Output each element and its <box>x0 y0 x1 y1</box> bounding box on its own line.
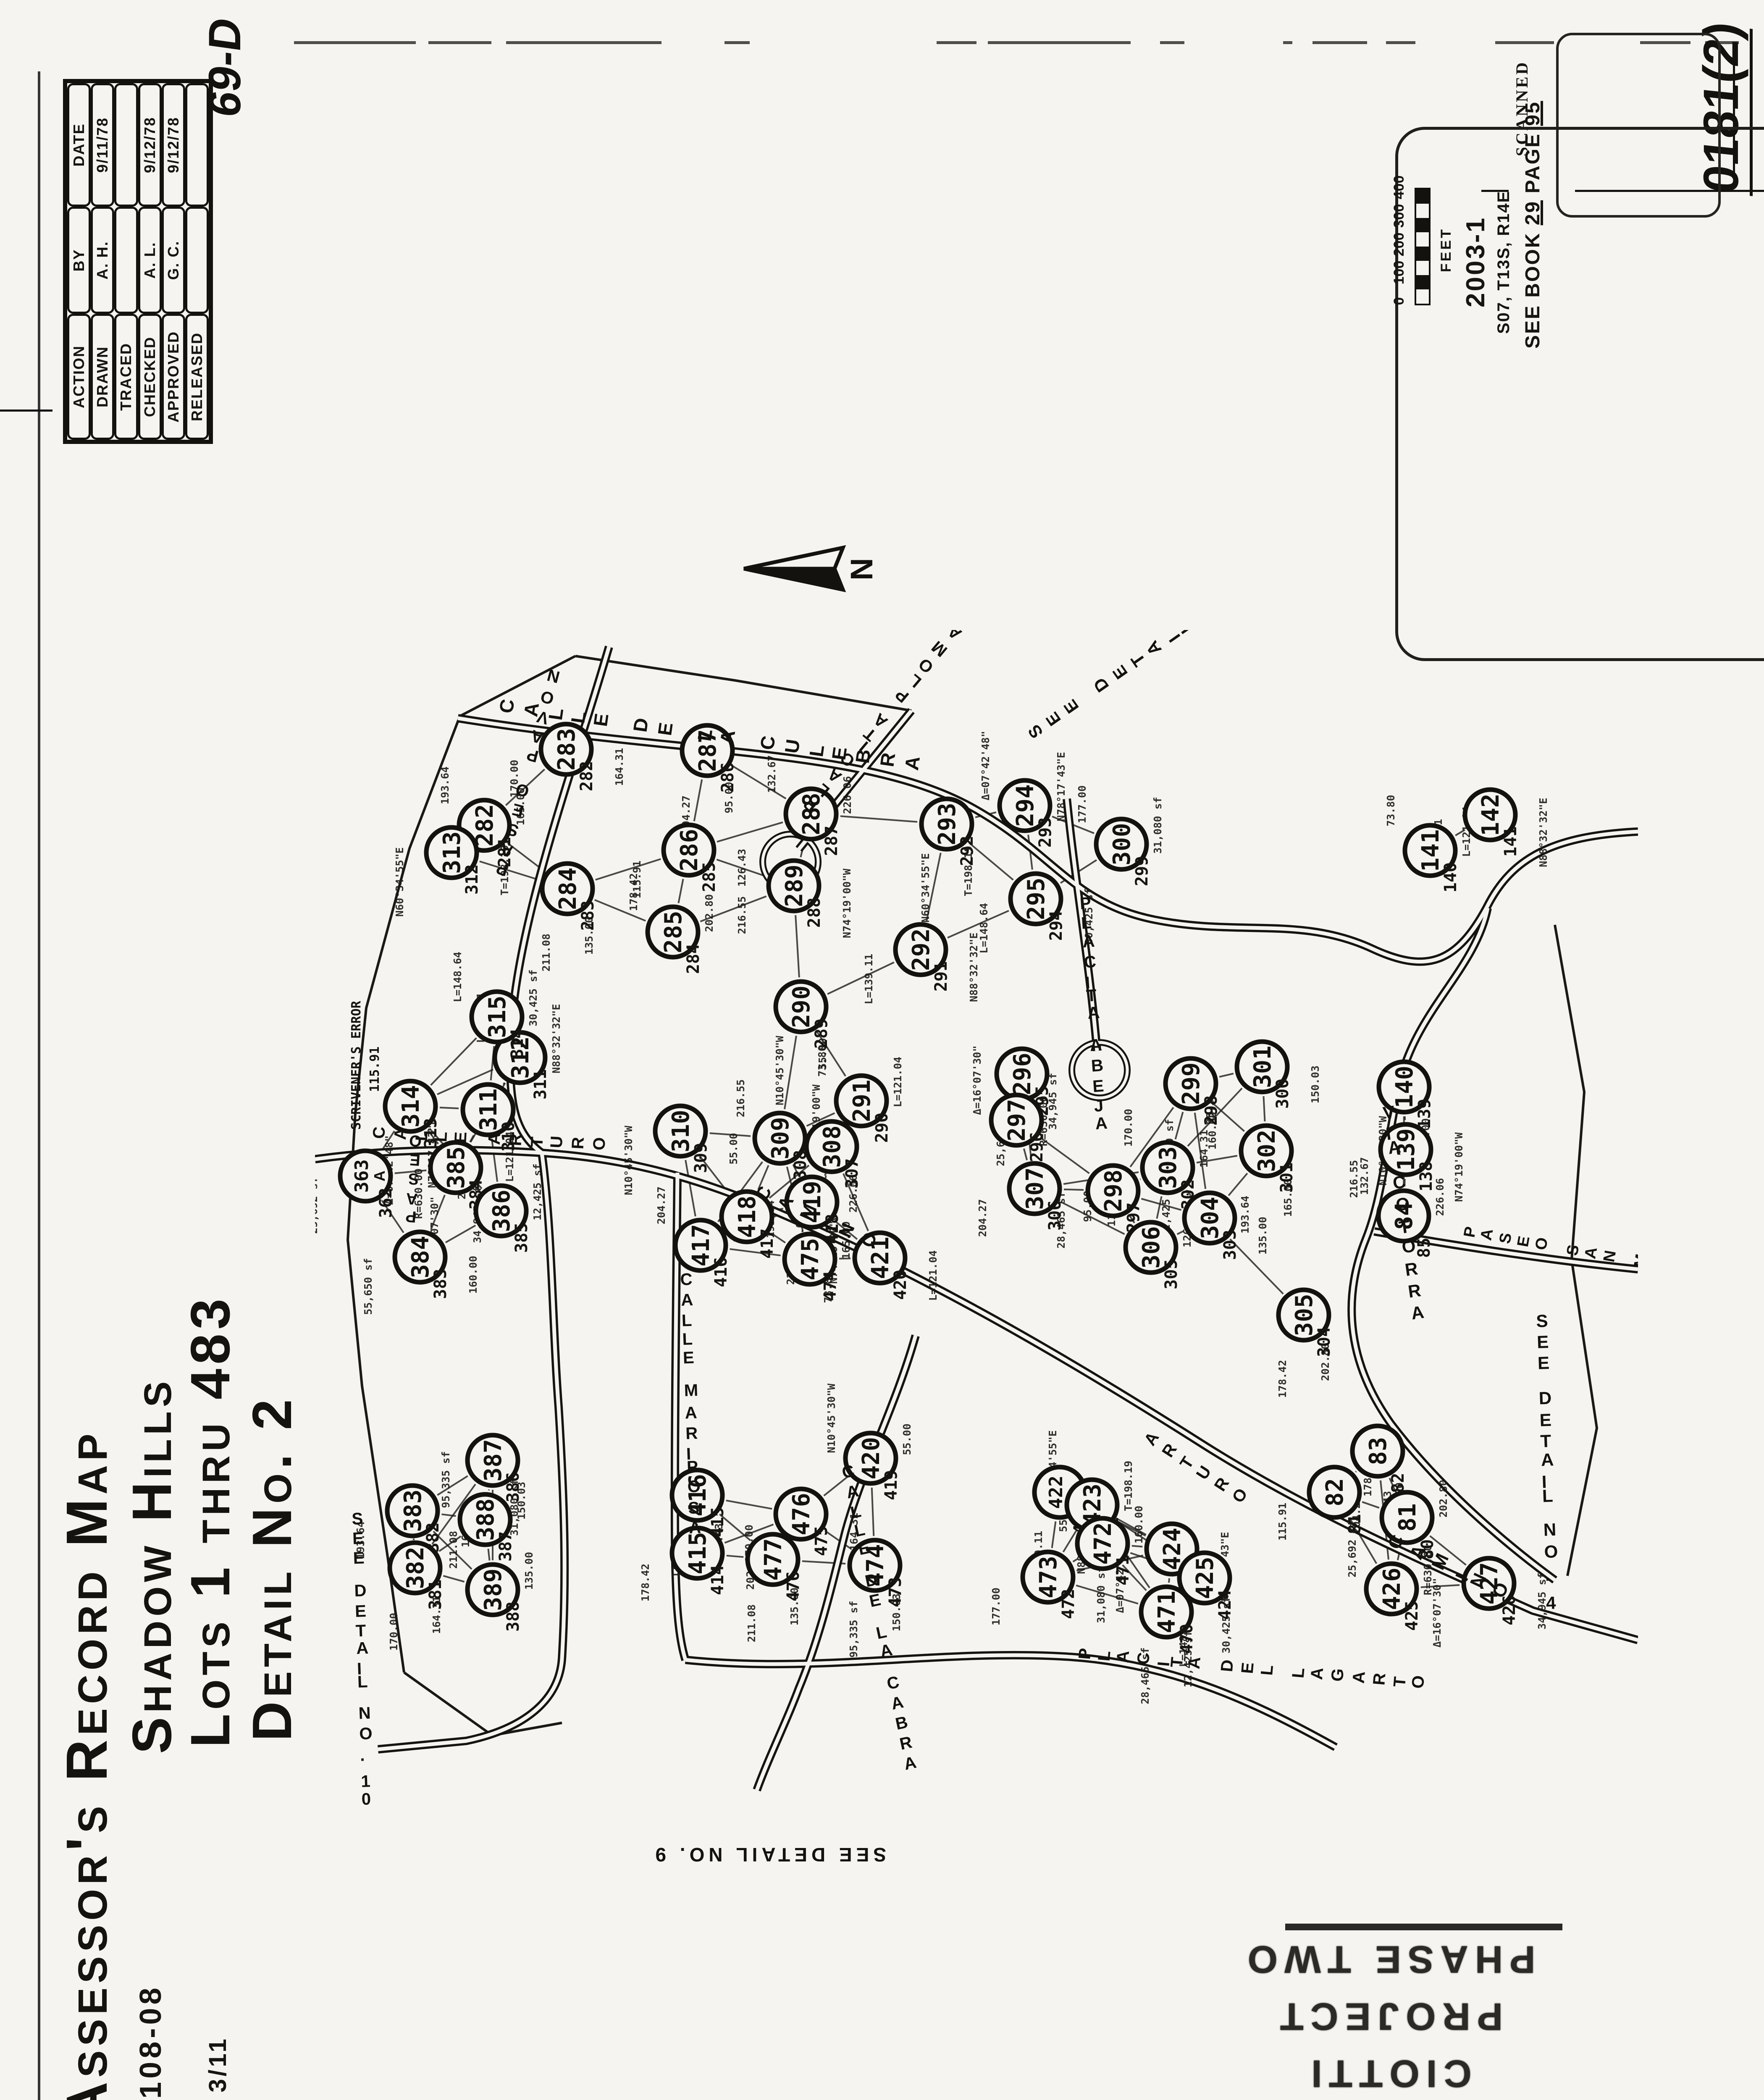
lot-number: 284 <box>554 867 582 910</box>
lot-number: 472 <box>1089 1522 1117 1564</box>
lot-number: 298 <box>1100 1169 1127 1212</box>
parcel-line <box>795 915 799 977</box>
dimension-text: 115.91 <box>631 861 643 898</box>
adjacent-lot-number: 312 <box>462 864 482 895</box>
dimension-text: 31,080 sf <box>1095 1566 1107 1623</box>
adjacent-lot-number: 415 <box>708 1507 727 1537</box>
parcel-line <box>1263 1096 1265 1121</box>
scan-dash <box>1160 41 1184 44</box>
adjacent-lot-number: 291 <box>932 961 951 992</box>
lot-number: 294 <box>1012 784 1039 827</box>
lot-number: 383 <box>399 1489 427 1532</box>
lot-number-suffix: A <box>371 1171 388 1181</box>
adjacent-lot-number: 426 <box>1500 1595 1519 1625</box>
lot-number: 142 <box>1477 793 1504 836</box>
dimension-text: 25,692 sf <box>315 1177 320 1234</box>
scale-unit-label: FEET <box>1438 209 1454 272</box>
dimension-text: 164.31 <box>1198 1130 1210 1168</box>
lot-number: 473 <box>1035 1556 1062 1598</box>
map-ref: 2003-1 <box>1461 194 1491 307</box>
lot-number: 82 <box>1321 1478 1349 1506</box>
parcel-line <box>694 780 702 821</box>
lot-number: 382 <box>402 1546 429 1589</box>
dimension-text: N88°32'32"E <box>550 1004 562 1074</box>
dimension-text: 204.27 <box>655 1186 667 1224</box>
adjacent-lot-number: 289 <box>812 1018 831 1049</box>
parcel-line <box>488 1549 490 1561</box>
lot-number: 475 <box>797 1238 824 1280</box>
scan-dash <box>988 41 1131 44</box>
scan-dash <box>1495 41 1554 44</box>
north-arrow-head-top <box>744 548 843 569</box>
lot-number: 296 <box>1009 1053 1036 1095</box>
lot-number: 295 <box>1023 877 1050 920</box>
rev-cell <box>114 207 138 314</box>
adjacent-lot-number: 286 <box>718 762 738 793</box>
rev-cell: A. L. <box>138 207 162 314</box>
lot-number: 422 <box>1045 1475 1067 1509</box>
lot-number: 304 <box>1197 1197 1224 1239</box>
lot-number: 313 <box>438 831 466 874</box>
adjacent-lot-number: 139 <box>1415 1099 1434 1129</box>
lot-number: 302 <box>1253 1129 1281 1172</box>
rev-cell: RELEASED <box>185 314 209 440</box>
adjacent-lot-number: 140 <box>1441 862 1460 892</box>
info-panel-frame <box>1395 127 1764 661</box>
dimension-text: 202.80 <box>1437 1480 1449 1517</box>
scale-bar <box>1415 188 1431 305</box>
adjacent-lot-number: 284 <box>684 944 703 974</box>
adjacent-lot-number: 307 <box>843 1158 862 1189</box>
adjacent-lot-number: 285 <box>700 862 719 892</box>
lot-number: 471 <box>1153 1591 1181 1633</box>
parcel-line <box>1064 1189 1084 1190</box>
dimension-text: 95,335 sf <box>440 1451 452 1508</box>
dimension-text: L=148.64 <box>451 952 464 1002</box>
lot-number: 299 <box>1178 1062 1205 1105</box>
map-annotation: 115.91 <box>367 1047 382 1092</box>
dimension-text: 211.08 <box>745 1604 758 1642</box>
book-code: 108-08 <box>134 1937 168 2099</box>
lot-number: 300 <box>1108 823 1136 865</box>
title-lots-range: Lots 1 thru 483 <box>178 1252 242 1748</box>
dimension-text: 30,425 sf <box>527 969 539 1026</box>
lot-number: 285 <box>660 911 687 953</box>
adjacent-lot-number: 385 <box>512 1223 531 1253</box>
adjacent-lot-number: 292 <box>958 836 977 866</box>
dimension-text: N10°45'30"W <box>825 1383 837 1453</box>
lot-number: 307 <box>1021 1167 1049 1210</box>
book-number: 29 <box>1522 200 1544 225</box>
lot-number: 303 <box>1155 1146 1182 1189</box>
dimension-text: 204.27 <box>976 1199 989 1237</box>
dimension-text: 177.00 <box>990 1588 1002 1625</box>
adjacent-lot-number: 282 <box>577 761 596 791</box>
lot-number: 477 <box>760 1538 787 1580</box>
book-prefix: SEE BOOK <box>1522 232 1544 349</box>
lot-number: 141 <box>1417 829 1444 871</box>
lot-number: 293 <box>934 803 961 845</box>
scan-dash <box>428 41 491 44</box>
dimension-text: L=121.04 <box>927 1250 939 1301</box>
dimension-text: N10°45'30"W <box>622 1125 635 1195</box>
adjacent-lot-number: 287 <box>822 826 841 856</box>
lot-number: 306 <box>1138 1226 1165 1268</box>
dimension-text: L=148.64 <box>978 903 990 953</box>
dimension-text: Δ=07°42'48" <box>979 731 992 801</box>
north-arrow: N <box>737 542 880 609</box>
rev-cell: APPROVED <box>162 314 185 440</box>
dimension-text: 216.55 <box>735 1079 747 1117</box>
adjacent-lot-number: 301 <box>1277 1163 1297 1193</box>
adjacent-lot-number: 300 <box>1273 1079 1292 1109</box>
dimension-text: 126.43 <box>736 849 748 887</box>
parcel-line <box>678 879 683 903</box>
dimension-text: 160.00 <box>1133 1506 1145 1543</box>
dimension-text: 73.80 <box>816 1045 828 1076</box>
lot-number: 308 <box>819 1125 846 1168</box>
dimension-text: T=198.19 <box>1122 1461 1134 1511</box>
parcel-line <box>1176 1112 1183 1139</box>
sheet-code-handwritten: 69-D <box>198 7 251 120</box>
adjacent-lot-number: 381 <box>426 1580 445 1610</box>
scan-dash <box>724 41 750 44</box>
parcel-line <box>1169 1578 1169 1583</box>
lot-number: 417 <box>688 1224 715 1266</box>
dimension-text: 216.55 <box>736 896 748 934</box>
adjacent-lot-number: 293 <box>1036 817 1055 848</box>
dimension-text: 178.42 <box>1276 1360 1289 1398</box>
scan-dash <box>294 41 416 44</box>
township-range: S07, T13S, R14E <box>1494 191 1513 334</box>
lot-circle: 82 <box>1309 1467 1360 1517</box>
rev-header-cell: DATE <box>67 83 91 207</box>
scan-dash <box>1283 41 1292 44</box>
rev-cell: 9/11/78 <box>91 83 114 207</box>
parcel-line <box>1362 1502 1379 1508</box>
parcel-line <box>1132 1546 1142 1546</box>
dimension-text: 55.00 <box>727 1133 740 1164</box>
sheet-index: 3/11 <box>204 1974 232 2092</box>
adjacent-lot-number: 296 <box>1027 1132 1047 1162</box>
scan-dash <box>506 41 661 44</box>
stamp-line: PHASE TWO <box>1203 1931 1573 1988</box>
adjacent-lot-number: 299 <box>1132 856 1152 886</box>
adjacent-lot-number: 416 <box>711 1257 731 1287</box>
parcel-line <box>1219 1074 1234 1077</box>
scale-segment <box>1416 247 1429 261</box>
adjacent-lot-number: 288 <box>805 898 824 928</box>
lot-number: 292 <box>908 928 935 971</box>
dimension-text: N74°19'00"W <box>841 868 853 938</box>
lot-number: 283 <box>553 728 580 770</box>
parcel-line <box>1076 1585 1138 1604</box>
dimension-text: 55,650 sf <box>362 1258 374 1315</box>
adjacent-lot-number: 471 <box>1113 1555 1133 1585</box>
dimension-text: 193.64 <box>439 766 451 804</box>
page-number: 95 <box>1522 101 1544 126</box>
dimension-text: 132.67 <box>766 755 778 793</box>
lot-number: 291 <box>848 1079 876 1122</box>
dimension-text: 115.91 <box>1276 1503 1289 1541</box>
adjacent-lot-number: 383 <box>431 1269 450 1299</box>
parcel-line <box>492 1139 497 1181</box>
parcel-line <box>431 1038 477 1085</box>
stamp-strike-line <box>1285 1924 1562 1930</box>
adjacent-lot-number: 81 <box>1345 1514 1365 1534</box>
parcel-line <box>1024 1149 1027 1160</box>
adjacent-lot-number: 425 <box>1402 1601 1422 1631</box>
dimension-text: 95,335 sf <box>848 1601 860 1657</box>
adjacent-lot-number: 476 <box>784 1571 803 1601</box>
scale-segment <box>1416 232 1429 247</box>
north-arrow-head-bottom <box>744 569 843 590</box>
dimension-text: 135.00 <box>523 1552 535 1590</box>
dimension-text: 73.80 <box>1385 795 1397 826</box>
scale-segment <box>1416 204 1429 218</box>
dimension-text: N78°17'43"E <box>1055 752 1067 822</box>
lot-number: 286 <box>676 829 703 871</box>
dimension-text: 135.00 <box>1257 1217 1269 1255</box>
lot-number: 305 <box>1291 1294 1318 1336</box>
adjacent-lot-number: 386 <box>504 1472 523 1502</box>
lot-number: 388 <box>472 1498 499 1541</box>
lot-number: 289 <box>781 864 808 907</box>
adjacent-lot-number: 417 <box>758 1228 777 1259</box>
adjacent-lot-number: 309 <box>691 1143 711 1173</box>
adjacent-lot-number: 414 <box>708 1565 727 1595</box>
detail-note: SEE DETAIL NO. 10 <box>352 1509 383 1809</box>
dimension-text: 55.00 <box>901 1423 913 1455</box>
dimension-text: 12,425 sf <box>531 1163 543 1220</box>
dimension-text: Δ=16°07'30" <box>1431 1578 1443 1648</box>
lot-number: 301 <box>1249 1045 1276 1088</box>
adjacent-lot-number: 472 <box>1059 1589 1078 1619</box>
lot-number: 426 <box>1378 1567 1406 1610</box>
parcel-line <box>726 1501 772 1509</box>
dimension-text: N60°34'55"E <box>919 853 932 923</box>
dimension-text: 150.03 <box>1309 1066 1321 1103</box>
scale-segment <box>1416 218 1429 232</box>
lot-number: 363 <box>351 1159 373 1192</box>
rev-cell <box>114 83 138 207</box>
lot-number: 386 <box>488 1189 515 1232</box>
dimension-text: 211.08 <box>540 934 552 971</box>
rev-cell: G. C. <box>162 207 185 314</box>
rev-cell: TRACED <box>114 314 138 440</box>
rev-cell: 9/12/78 <box>138 83 162 207</box>
title-shadow-hills: Shadow Hills <box>120 1237 184 1754</box>
dimension-text: N74°19'00"W <box>1453 1132 1465 1202</box>
rev-cell: A. H. <box>91 207 114 314</box>
lot-number: 309 <box>767 1117 794 1159</box>
north-letter: N <box>844 558 879 580</box>
left-tick-line <box>0 409 52 412</box>
dimension-text: 160.00 <box>467 1256 479 1294</box>
dimension-text: L=121.04 <box>892 1057 904 1107</box>
adjacent-lot-number: 82 <box>1389 1473 1408 1493</box>
lot-number: 387 <box>480 1439 507 1481</box>
dimension-text: L=139.11 <box>863 954 875 1004</box>
adjacent-lot-number: 424 <box>1215 1590 1235 1620</box>
scale-tick-label: 400 <box>1391 168 1407 207</box>
plat-map: 165.00193.64170.00164.31135.00211.08178.… <box>315 630 1638 1932</box>
parcel-line <box>1052 1521 1056 1548</box>
lot-number: 297 <box>1003 1099 1031 1141</box>
adjacent-lot-number: 314 <box>508 1029 527 1059</box>
detail-note: SEE DETAIL NO. 9 <box>651 1844 886 1866</box>
lot-number: 290 <box>788 985 815 1028</box>
dimension-text: 226.06 <box>841 776 853 814</box>
dimension-text: 211.08 <box>447 1531 459 1569</box>
project-stamp: CIOTTIPROJECTPHASE TWO <box>1203 1921 1573 2100</box>
rev-cell: DRAWN <box>91 314 114 440</box>
scanned-assessor-map-page: ACTIONDRAWNTRACEDCHECKEDAPPROVEDRELEASED… <box>0 0 1764 2100</box>
book-page-note: SEE BOOK 29 PAGE 95 <box>1521 126 1544 349</box>
scale-segment <box>1416 189 1429 204</box>
adjacent-lot-number: 283 <box>578 900 598 931</box>
title-detail-no: Detail No. 2 <box>240 1326 304 1741</box>
dimension-text: 132.67 <box>1358 1157 1370 1195</box>
stamp-line: PROJECT <box>1203 1988 1573 2045</box>
dimension-text: 170.00 <box>388 1613 400 1651</box>
adjacent-lot-number: 420 <box>891 1270 910 1300</box>
adjacent-lot-number: 419 <box>882 1470 901 1500</box>
dimension-text: 202.80 <box>703 894 715 932</box>
adjacent-lot-number: 387 <box>496 1531 515 1562</box>
scan-dash <box>1312 41 1367 44</box>
adjacent-lot-number: 303 <box>1221 1230 1240 1260</box>
scan-dash <box>937 41 976 44</box>
lot-number: 415 <box>684 1532 711 1574</box>
scale-segment <box>1416 261 1429 275</box>
stamp-line: CIOTTI <box>1203 2045 1573 2100</box>
lot-number: 389 <box>480 1568 507 1611</box>
lot-number: 476 <box>788 1493 815 1535</box>
lot-number: 385 <box>443 1146 470 1189</box>
adjacent-lot-number: 138 <box>1417 1161 1436 1192</box>
parcel-line <box>1356 1471 1357 1472</box>
parcel-line <box>827 962 894 994</box>
page-word: PAGE <box>1522 133 1544 193</box>
parcel-line <box>727 1556 743 1557</box>
adjacent-lot-number: 475 <box>812 1526 831 1556</box>
parcel-line <box>1228 1173 1247 1196</box>
parcel-line <box>443 1576 464 1582</box>
parcel-line <box>785 1036 796 1109</box>
lot-number: 425 <box>1192 1557 1219 1599</box>
adjacent-lot-number: 362 <box>376 1188 396 1218</box>
dimension-text: 164.31 <box>613 748 625 786</box>
parcel-line <box>840 816 917 822</box>
rev-cell: CHECKED <box>138 314 162 440</box>
dimension-text: 177.00 <box>1076 785 1088 823</box>
adjacent-lot-number: 290 <box>872 1113 892 1143</box>
adjacent-lot-number: 311 <box>531 1069 550 1100</box>
dimension-text: N60°34'55"E <box>394 847 406 917</box>
title-assessors-record-map: Assessor's Record Map <box>54 1305 121 2100</box>
dimension-text: 170.00 <box>1122 1109 1134 1147</box>
rev-header-cell: BY <box>67 207 91 314</box>
adjacent-lot-number: 305 <box>1162 1259 1181 1289</box>
lot-number: 384 <box>407 1236 434 1278</box>
dimension-text: N88°32'32"E <box>1537 798 1549 867</box>
lot-number: 310 <box>667 1110 695 1152</box>
lot-number: 315 <box>484 995 511 1038</box>
rev-header-cell: ACTION <box>67 314 91 440</box>
adjacent-lot-number: 474 <box>821 1271 840 1301</box>
detail-note: SEE DETAIL NO. 3 <box>1017 630 1288 742</box>
parcel-line <box>732 766 786 799</box>
map-annotation: SCRIVENER'S ERROR <box>349 1000 364 1130</box>
rev-cell <box>185 207 209 314</box>
rev-cell: 9/12/78 <box>162 83 185 207</box>
lot-number: 418 <box>734 1195 761 1238</box>
lot-number: 83 <box>1365 1437 1392 1465</box>
revision-table: ACTIONDRAWNTRACEDCHECKEDAPPROVEDRELEASED… <box>63 79 213 444</box>
scale-segment <box>1416 275 1429 289</box>
adjacent-lot-number: 294 <box>1047 911 1066 941</box>
parcel-line <box>440 1108 459 1108</box>
adjacent-lot-number: 304 <box>1315 1327 1334 1357</box>
left-edge-scan-line <box>38 71 40 2100</box>
lot-circle: 83 <box>1352 1426 1403 1476</box>
dimension-text: N10°45'30"W <box>774 1035 786 1105</box>
dimension-text: 31,080 sf <box>1152 797 1164 853</box>
dimension-text: 178.42 <box>639 1564 651 1601</box>
adjacent-lot-number: 306 <box>1045 1200 1065 1231</box>
adjacent-lot-number: 388 <box>504 1601 523 1632</box>
adjacent-lot-number: 298 <box>1202 1095 1221 1126</box>
adjacent-lot-number: 141 <box>1501 827 1520 857</box>
scan-dash <box>1386 41 1415 44</box>
dimension-text: 193.64 <box>1239 1196 1251 1234</box>
scale-segment <box>1416 289 1429 304</box>
subdivision-boundary <box>575 656 911 711</box>
dimension-text: 216.55 <box>1348 1160 1360 1198</box>
dimension-text: Δ=16°07'30" <box>971 1045 983 1115</box>
